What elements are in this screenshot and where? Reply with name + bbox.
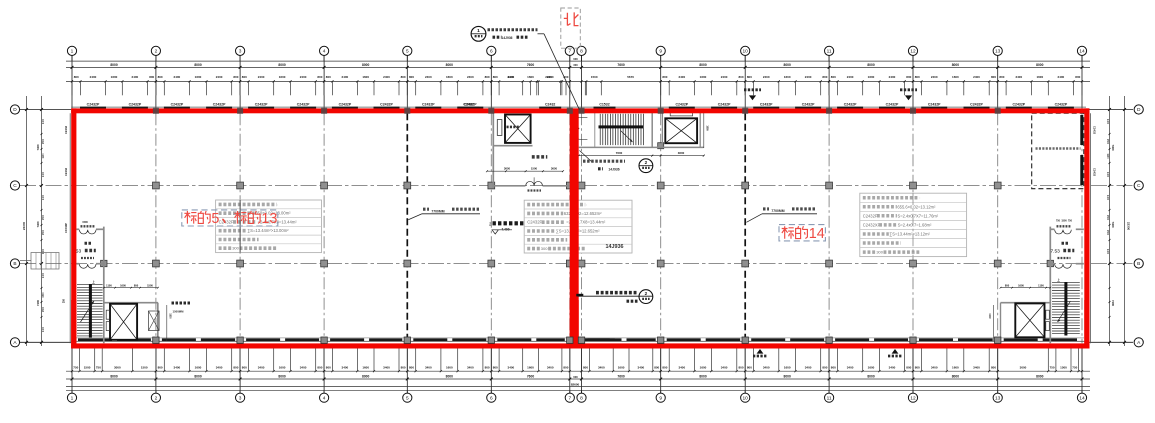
svg-text:3400: 3400 <box>258 365 265 369</box>
svg-text:7600: 7600 <box>617 375 625 379</box>
svg-text:6: 6 <box>490 49 493 55</box>
svg-text:7400: 7400 <box>1111 145 1115 151</box>
svg-text:10: 10 <box>743 395 749 401</box>
svg-text:1600: 1600 <box>527 365 534 369</box>
svg-text:800: 800 <box>662 365 667 369</box>
svg-text:C2432P: C2432P <box>886 103 899 107</box>
svg-text:8000: 8000 <box>867 63 875 67</box>
svg-text:6: 6 <box>490 395 493 401</box>
svg-text:8000: 8000 <box>362 63 370 67</box>
svg-text:3400: 3400 <box>847 365 854 369</box>
svg-text::: : <box>586 203 587 207</box>
svg-text:13: 13 <box>995 49 1001 55</box>
svg-text:800: 800 <box>485 75 490 79</box>
svg-text:2: 2 <box>645 160 648 165</box>
svg-text:3400: 3400 <box>216 365 223 369</box>
svg-text:800: 800 <box>831 365 836 369</box>
svg-text:750: 750 <box>73 365 78 369</box>
svg-text:1500: 1500 <box>43 229 45 235</box>
svg-text:∑S=13.44m²>13.12m²: ∑S=13.44m²>13.12m² <box>889 231 930 236</box>
svg-text:C1532: C1532 <box>599 103 609 107</box>
svg-text:22300: 22300 <box>1126 222 1130 231</box>
svg-text:1600: 1600 <box>952 75 959 79</box>
svg-text:800: 800 <box>326 365 331 369</box>
svg-text:3400: 3400 <box>638 365 645 369</box>
svg-text:800: 800 <box>242 75 247 79</box>
svg-text:800: 800 <box>485 365 490 369</box>
svg-text:C2432P: C2432P <box>675 103 688 107</box>
svg-text:2400: 2400 <box>300 75 307 79</box>
svg-text:C2432P: C2432P <box>219 219 234 224</box>
svg-text:14: 14 <box>1079 395 1085 401</box>
svg-text:1600: 1600 <box>111 75 118 79</box>
svg-text:上: 上 <box>1057 277 1060 282</box>
svg-text:3400: 3400 <box>678 365 685 369</box>
svg-text:2400: 2400 <box>1106 119 1109 125</box>
svg-text:8000: 8000 <box>1036 63 1044 67</box>
svg-text:8000: 8000 <box>446 63 454 67</box>
svg-text:2400: 2400 <box>42 171 45 177</box>
svg-text:C2432P: C2432P <box>87 103 100 107</box>
svg-text:3400: 3400 <box>300 365 307 369</box>
svg-text:8: 8 <box>580 395 583 401</box>
svg-text:1100: 1100 <box>106 283 112 287</box>
svg-text:3400: 3400 <box>721 365 728 369</box>
svg-text:2400: 2400 <box>132 75 139 79</box>
svg-text:632×0.02=12.652m²: 632×0.02=12.652m² <box>564 211 602 216</box>
svg-text:C2432P: C2432P <box>1012 103 1025 107</box>
svg-text:1500: 1500 <box>43 292 45 298</box>
svg-text:800: 800 <box>915 75 920 79</box>
svg-text:1600: 1600 <box>195 75 202 79</box>
svg-text:800: 800 <box>326 75 331 79</box>
svg-text:1600: 1600 <box>618 365 625 369</box>
svg-text:3400: 3400 <box>547 365 554 369</box>
svg-text:10: 10 <box>743 49 749 55</box>
svg-text:7700MM: 7700MM <box>431 210 444 214</box>
svg-text:8: 8 <box>580 49 583 55</box>
svg-text:8000: 8000 <box>952 63 960 67</box>
svg-text:1500: 1500 <box>43 138 45 144</box>
svg-text:C2432P: C2432P <box>255 103 268 107</box>
svg-text:800: 800 <box>1075 75 1080 79</box>
svg-text:3400: 3400 <box>467 365 474 369</box>
svg-text:1600: 1600 <box>868 365 875 369</box>
svg-text:2400: 2400 <box>42 326 45 332</box>
svg-text:250: 250 <box>63 298 66 303</box>
svg-text:1600: 1600 <box>1018 283 1024 287</box>
svg-text:800: 800 <box>654 365 659 369</box>
svg-text:7400: 7400 <box>1111 300 1115 306</box>
svg-text:3400: 3400 <box>383 365 390 369</box>
svg-text:1600: 1600 <box>527 75 534 79</box>
svg-text:8000: 8000 <box>699 63 707 67</box>
svg-text:14J936: 14J936 <box>606 244 624 250</box>
svg-text:2400: 2400 <box>1106 172 1109 178</box>
svg-text:2400: 2400 <box>1015 75 1022 79</box>
svg-text:2400: 2400 <box>889 75 896 79</box>
svg-text:8000: 8000 <box>784 375 792 379</box>
svg-text:C2432P: C2432P <box>802 103 815 107</box>
svg-text:2400: 2400 <box>847 75 854 79</box>
svg-text:655.6×0.02=13.12m²: 655.6×0.02=13.12m² <box>897 204 936 209</box>
svg-text:8000: 8000 <box>1036 375 1044 379</box>
svg-text:800: 800 <box>401 365 406 369</box>
svg-text:800: 800 <box>134 283 139 287</box>
svg-text:2400: 2400 <box>425 75 432 79</box>
svg-text:800: 800 <box>493 365 498 369</box>
svg-text:1600: 1600 <box>120 283 126 287</box>
svg-text:2400: 2400 <box>545 75 552 79</box>
svg-text:C2432P: C2432P <box>339 103 352 107</box>
svg-text:14: 14 <box>809 226 825 242</box>
svg-text:C2432P: C2432P <box>1055 103 1068 107</box>
svg-text:3000: 3000 <box>990 313 992 319</box>
svg-text:8000: 8000 <box>278 375 286 379</box>
svg-text:14J936: 14J936 <box>608 168 619 172</box>
svg-text:2: 2 <box>645 291 648 296</box>
svg-text:2400: 2400 <box>42 272 45 278</box>
svg-text:1600: 1600 <box>700 75 707 79</box>
svg-text:3400: 3400 <box>931 365 938 369</box>
svg-text:800: 800 <box>747 365 752 369</box>
svg-text:300: 300 <box>232 246 239 251</box>
svg-text:14J936: 14J936 <box>501 36 512 40</box>
svg-text:5: 5 <box>211 211 219 227</box>
svg-text:7400: 7400 <box>1111 222 1115 228</box>
svg-text:14: 14 <box>1079 49 1085 55</box>
svg-text:C2432: C2432 <box>545 103 555 107</box>
svg-text:1500: 1500 <box>43 306 45 312</box>
svg-text:1100: 1100 <box>43 153 45 159</box>
svg-text:800: 800 <box>991 365 996 369</box>
svg-text:1600: 1600 <box>700 365 707 369</box>
svg-text:8000: 8000 <box>446 375 454 379</box>
svg-text:3400: 3400 <box>508 365 515 369</box>
svg-text:C2432P: C2432P <box>970 103 983 107</box>
svg-text:1500: 1500 <box>531 167 538 171</box>
svg-text:13: 13 <box>261 211 277 227</box>
svg-text:B: B <box>13 261 16 267</box>
svg-text::: : <box>919 196 920 200</box>
svg-text:8000: 8000 <box>699 375 707 379</box>
svg-text:800: 800 <box>317 365 322 369</box>
svg-text:C2432P: C2432P <box>844 103 857 107</box>
svg-text:9: 9 <box>659 395 662 401</box>
svg-text:3: 3 <box>239 395 242 401</box>
svg-text:2400: 2400 <box>763 75 770 79</box>
svg-text:3400: 3400 <box>174 365 181 369</box>
svg-text:800: 800 <box>999 75 1004 79</box>
svg-text:2400: 2400 <box>805 75 812 79</box>
svg-text:1600: 1600 <box>446 365 453 369</box>
svg-text:800: 800 <box>906 365 911 369</box>
svg-text:3400: 3400 <box>342 365 349 369</box>
svg-text:D: D <box>1137 107 1141 113</box>
svg-text:7700MM: 7700MM <box>771 209 784 213</box>
svg-text:800: 800 <box>158 75 163 79</box>
svg-text:7600: 7600 <box>527 63 535 67</box>
svg-text:C2432: C2432 <box>64 125 68 134</box>
svg-text:13: 13 <box>995 395 1001 401</box>
svg-text:800: 800 <box>991 75 996 79</box>
svg-text:2400: 2400 <box>258 75 265 79</box>
svg-text:2400: 2400 <box>90 75 97 79</box>
svg-text:2400: 2400 <box>678 75 685 79</box>
svg-text:1500: 1500 <box>147 283 153 287</box>
svg-text:3400: 3400 <box>973 365 980 369</box>
svg-text:1600: 1600 <box>362 365 369 369</box>
svg-text:3400: 3400 <box>598 365 605 369</box>
svg-text:1600: 1600 <box>1036 75 1043 79</box>
svg-text:800: 800 <box>409 365 414 369</box>
svg-text:2400: 2400 <box>216 75 223 79</box>
svg-text:1500: 1500 <box>84 365 91 369</box>
svg-text:750: 750 <box>96 365 101 369</box>
svg-text:800: 800 <box>738 365 743 369</box>
svg-text:1600: 1600 <box>784 75 791 79</box>
svg-text:800: 800 <box>493 75 498 79</box>
svg-text:C2432P: C2432P <box>928 103 941 107</box>
svg-text:1500: 1500 <box>168 313 170 319</box>
svg-text:1800: 1800 <box>706 125 709 131</box>
svg-text:800: 800 <box>409 75 414 79</box>
svg-text:2400: 2400 <box>721 75 728 79</box>
svg-text:800: 800 <box>822 75 827 79</box>
svg-text:7400: 7400 <box>36 300 40 306</box>
svg-text:800: 800 <box>317 75 322 79</box>
svg-text:12: 12 <box>910 49 916 55</box>
svg-text:1: 1 <box>71 49 74 55</box>
svg-text:S=2.4x0.7X7=11.76m²: S=2.4x0.7X7=11.76m² <box>898 213 939 218</box>
svg-text:800: 800 <box>583 365 588 369</box>
svg-text:11: 11 <box>827 395 832 401</box>
svg-text:C2432: C2432 <box>64 167 68 176</box>
svg-text:12: 12 <box>910 395 916 401</box>
svg-text:1600: 1600 <box>195 365 202 369</box>
svg-text:600: 600 <box>573 57 578 61</box>
svg-text:1600: 1600 <box>446 75 453 79</box>
svg-text:800: 800 <box>563 365 568 369</box>
svg-text:C2432P: C2432P <box>863 213 878 218</box>
svg-text:9: 9 <box>659 49 662 55</box>
svg-text:800: 800 <box>747 75 752 79</box>
svg-text:7.53: 7.53 <box>1051 249 1061 255</box>
svg-text:C2432: C2432 <box>1093 126 1097 135</box>
svg-text:C2432P: C2432P <box>760 103 773 107</box>
svg-text:1600: 1600 <box>868 75 875 79</box>
svg-text:8000: 8000 <box>362 375 370 379</box>
svg-text:2400: 2400 <box>931 75 938 79</box>
svg-text:8000: 8000 <box>110 375 118 379</box>
svg-text:S=2.4x0.7=1.68m²: S=2.4x0.7=1.68m² <box>898 222 932 227</box>
svg-text:2400: 2400 <box>1106 249 1109 255</box>
svg-text:2400: 2400 <box>1106 195 1109 201</box>
svg-text:8000: 8000 <box>194 375 202 379</box>
svg-text:800: 800 <box>149 75 154 79</box>
svg-text:300: 300 <box>541 246 548 251</box>
svg-text:C: C <box>13 183 17 189</box>
svg-text:4: 4 <box>323 395 326 401</box>
svg-text:1500: 1500 <box>141 365 148 369</box>
svg-text:5: 5 <box>406 49 409 55</box>
svg-text:22300: 22300 <box>22 221 26 230</box>
svg-text:3400: 3400 <box>889 365 896 369</box>
svg-text:上: 上 <box>92 279 95 284</box>
svg-text:B: B <box>1137 261 1140 267</box>
svg-text:800: 800 <box>662 75 667 79</box>
svg-text:1500: 1500 <box>82 221 88 224</box>
svg-text:1500: 1500 <box>1106 215 1108 221</box>
svg-text:1100: 1100 <box>1106 154 1108 160</box>
svg-text:800: 800 <box>915 365 920 369</box>
svg-text:750: 750 <box>1050 365 1055 369</box>
svg-text:3400: 3400 <box>425 365 432 369</box>
svg-text:600: 600 <box>574 64 579 67</box>
svg-text:∑S=13.44m²>13.00m²: ∑S=13.44m²>13.00m² <box>247 228 289 233</box>
svg-text:3000: 3000 <box>114 365 121 369</box>
svg-text:1600: 1600 <box>362 75 369 79</box>
svg-text:7600: 7600 <box>617 63 625 67</box>
svg-text:1500: 1500 <box>1106 230 1108 236</box>
svg-text:2: 2 <box>155 395 158 401</box>
svg-text:1600: 1600 <box>784 365 791 369</box>
svg-text:2400: 2400 <box>467 75 474 79</box>
svg-text:1600: 1600 <box>279 365 286 369</box>
svg-text::: : <box>277 203 278 207</box>
svg-text:8000: 8000 <box>784 63 792 67</box>
svg-text:C2432P: C2432P <box>718 103 731 107</box>
svg-text:1500: 1500 <box>1106 139 1108 145</box>
svg-text:C2432: C2432 <box>1093 168 1097 177</box>
svg-text:11: 11 <box>827 49 832 55</box>
svg-text:2400: 2400 <box>174 75 181 79</box>
svg-text:82600: 82600 <box>571 382 580 386</box>
svg-text:1600: 1600 <box>279 75 286 79</box>
svg-text:3650: 3650 <box>504 167 511 171</box>
svg-text:5670: 5670 <box>627 75 634 79</box>
svg-text:2400: 2400 <box>1058 75 1065 79</box>
svg-text:C2432P: C2432P <box>527 220 542 225</box>
svg-text:8000: 8000 <box>194 63 202 67</box>
svg-text:800: 800 <box>242 365 247 369</box>
svg-text:C2432P: C2432P <box>422 103 435 107</box>
svg-text:1500: 1500 <box>43 214 45 220</box>
svg-text:C2432P: C2432P <box>380 103 393 107</box>
svg-text:C2432: C2432 <box>463 103 473 107</box>
svg-text:3650: 3650 <box>551 167 558 171</box>
svg-text:3400: 3400 <box>805 365 812 369</box>
svg-text:7400: 7400 <box>36 221 40 227</box>
svg-text:7400: 7400 <box>36 144 40 150</box>
svg-text:3600: 3600 <box>678 151 685 155</box>
svg-text:8000: 8000 <box>110 63 118 67</box>
svg-text:800: 800 <box>401 75 406 79</box>
svg-text:2400: 2400 <box>42 194 45 200</box>
svg-text:8000: 8000 <box>278 63 286 67</box>
svg-text:7600: 7600 <box>616 151 623 155</box>
svg-text:800: 800 <box>158 365 163 369</box>
svg-text:800: 800 <box>831 75 836 79</box>
svg-text:2: 2 <box>155 49 158 55</box>
svg-text:8000: 8000 <box>867 375 875 379</box>
svg-text:C2432XP: C2432XP <box>863 222 881 227</box>
svg-text:1: 1 <box>477 28 480 34</box>
svg-text:2400: 2400 <box>383 75 390 79</box>
svg-text:C2432P: C2432P <box>129 103 142 107</box>
svg-text:1600: 1600 <box>952 365 959 369</box>
svg-text:3: 3 <box>239 49 242 55</box>
svg-text:800: 800 <box>233 365 238 369</box>
svg-text:2400: 2400 <box>42 118 45 124</box>
svg-text:600: 600 <box>573 375 578 379</box>
svg-text:C2432P: C2432P <box>171 103 184 107</box>
svg-text:C2432P: C2432P <box>213 103 226 107</box>
svg-text:750 1500 750: 750 1500 750 <box>1056 220 1073 223</box>
svg-text:D: D <box>13 107 17 113</box>
svg-text:800: 800 <box>1005 283 1010 287</box>
svg-text:7: 7 <box>568 49 571 55</box>
svg-text:1: 1 <box>71 395 74 401</box>
svg-text:3800: 3800 <box>508 75 515 79</box>
svg-text:800: 800 <box>906 75 911 79</box>
svg-text:5: 5 <box>406 395 409 401</box>
svg-text:800: 800 <box>822 365 827 369</box>
svg-text:300: 300 <box>876 250 883 255</box>
svg-text:1500MM: 1500MM <box>173 310 185 314</box>
svg-text:3400: 3400 <box>763 365 770 369</box>
svg-text:800: 800 <box>233 75 238 79</box>
svg-text:C2432P: C2432P <box>297 103 310 107</box>
svg-text:8000: 8000 <box>952 375 960 379</box>
svg-text:2400: 2400 <box>42 248 45 254</box>
svg-text:7: 7 <box>568 395 571 401</box>
svg-text:750: 750 <box>1072 365 1077 369</box>
svg-text:800: 800 <box>74 75 79 79</box>
svg-text:1100: 1100 <box>1038 283 1044 287</box>
svg-text:C1532P: C1532P <box>64 223 68 233</box>
svg-text:4: 4 <box>323 49 326 55</box>
svg-text:800: 800 <box>738 75 743 79</box>
svg-text:2400: 2400 <box>973 75 980 79</box>
svg-text:1500: 1500 <box>1060 365 1067 369</box>
svg-text:C: C <box>1137 183 1141 189</box>
svg-text:7600: 7600 <box>527 375 535 379</box>
svg-text:3000: 3000 <box>1020 365 1027 369</box>
svg-text:1500: 1500 <box>591 75 598 79</box>
svg-text:2400: 2400 <box>342 75 349 79</box>
